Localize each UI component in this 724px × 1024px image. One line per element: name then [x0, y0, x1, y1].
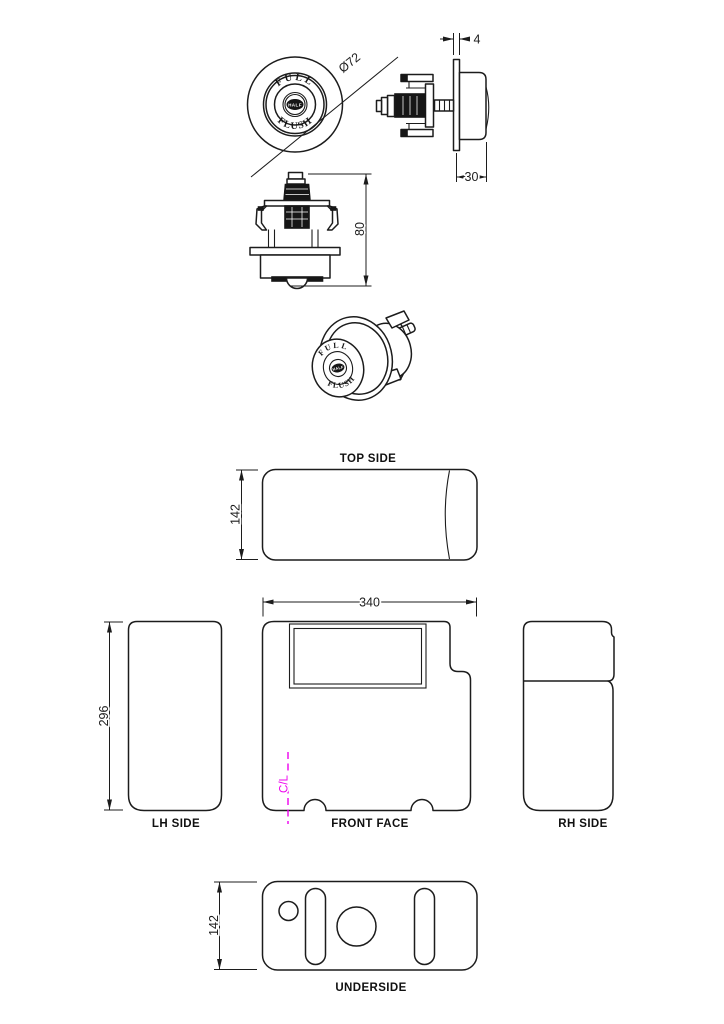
centerline-group: C/L	[279, 752, 291, 824]
fixing-mechanism-side	[377, 75, 454, 137]
lh-side-outline	[129, 622, 222, 811]
underside-view: 142 UNDERSIDE	[207, 882, 477, 995]
dim-button-depth-group: 30	[457, 142, 487, 184]
drawing-canvas: FULL FLUSH HALF Ø72	[0, 0, 724, 1024]
underside-label: UNDERSIDE	[335, 982, 406, 994]
threaded-core	[285, 206, 310, 229]
dim-button-depth: 30	[465, 170, 479, 184]
plunger-step-3	[377, 101, 382, 112]
button-face-text-half: HALF	[288, 102, 302, 107]
button-body-side	[460, 73, 487, 140]
left-slot	[306, 889, 326, 965]
dim-plate-thickness: 4	[474, 33, 481, 47]
rh-side-view: RH SIDE	[524, 622, 615, 831]
top-side-label: TOP SIDE	[340, 453, 396, 465]
lower-cup	[261, 255, 331, 278]
flange-plate	[250, 248, 340, 256]
rh-side-label: RH SIDE	[558, 818, 607, 830]
plunger-step-2	[382, 98, 388, 115]
dim-side-height-group: 296	[97, 622, 123, 810]
recess-outer	[290, 624, 427, 688]
lid-edge-line	[445, 471, 449, 560]
top-side-view: TOP SIDE 142	[229, 453, 478, 560]
dim-front-width: 340	[359, 596, 380, 610]
rh-side-outline	[524, 622, 615, 811]
dim-mech-height: 80	[353, 222, 367, 236]
dim-top-depth: 142	[229, 504, 243, 525]
button-3d-view: FULL FLUSH HALF	[307, 309, 418, 407]
technical-drawing-page: FULL FLUSH HALF Ø72	[0, 0, 724, 1024]
button-side-view: 4 30	[377, 33, 489, 185]
dim-front-width-group: 340	[263, 596, 477, 617]
diameter-leader-line	[251, 57, 398, 177]
bottom-dome	[287, 278, 308, 289]
dim-under-depth: 142	[207, 915, 221, 936]
dim-face-diameter: Ø72	[336, 50, 363, 76]
plunger-step-1	[388, 96, 395, 117]
threaded-stem	[284, 184, 311, 201]
front-face-view: 340 C/L FRONT FACE	[263, 596, 477, 831]
lh-side-view: 296 LH SIDE	[97, 622, 222, 831]
outlet-hole	[337, 907, 376, 946]
dim-plate-thickness-group: 4	[440, 33, 481, 56]
underside-outline	[263, 882, 478, 971]
fixing-hole	[279, 902, 298, 921]
button-face-view: FULL FLUSH HALF Ø72	[248, 50, 399, 177]
right-slot	[415, 889, 435, 965]
clip-crossbar	[265, 201, 330, 207]
dim-under-depth-group: 142	[207, 882, 257, 970]
wall-plate	[454, 60, 460, 151]
svg-text:FULL: FULL	[274, 72, 316, 89]
dim-top-depth-group: 142	[229, 470, 259, 560]
recess-inner	[294, 629, 422, 685]
knob-base	[287, 179, 305, 184]
front-face-label: FRONT FACE	[331, 818, 408, 830]
lh-side-label: LH SIDE	[152, 818, 200, 830]
mechanism-front-view: 80	[250, 173, 372, 289]
centerline-label: C/L	[279, 774, 291, 793]
dim-side-height: 296	[97, 706, 111, 727]
knob-top	[289, 173, 303, 180]
button-face-text-full: FULL	[274, 72, 316, 89]
